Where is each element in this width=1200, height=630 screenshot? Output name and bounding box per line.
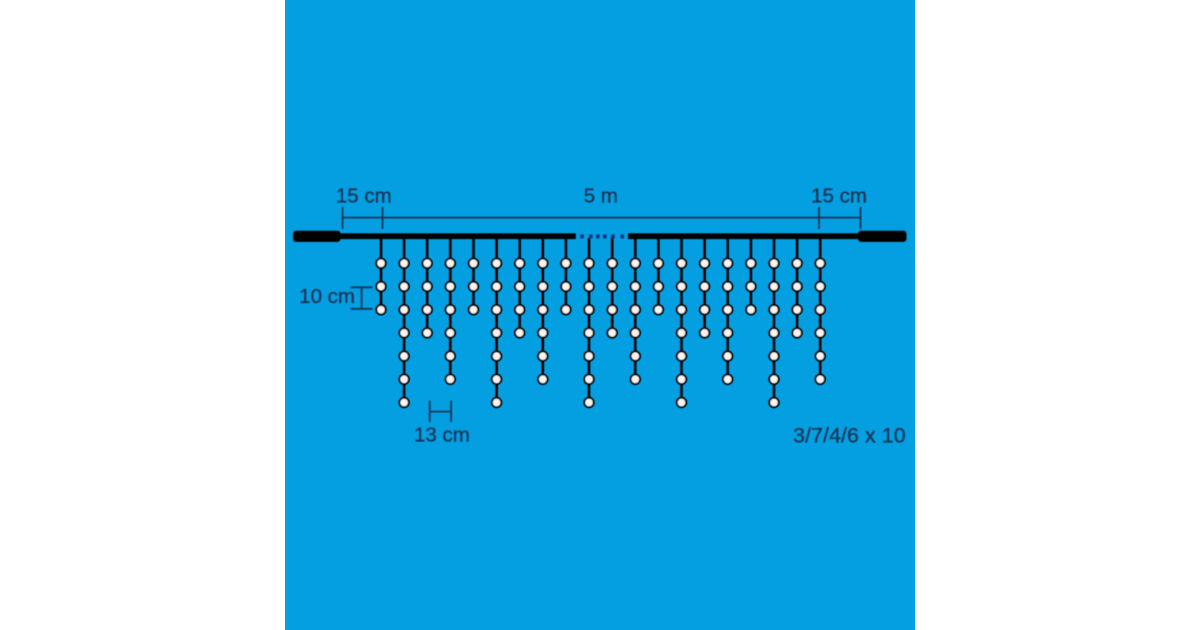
svg-text:3/7/4/6 x 10: 3/7/4/6 x 10 (793, 423, 906, 447)
svg-text:15 cm: 15 cm (336, 185, 392, 208)
svg-text:5 m: 5 m (584, 185, 618, 208)
svg-text:13 cm: 13 cm (414, 424, 470, 447)
svg-text:10 cm: 10 cm (299, 285, 355, 308)
svg-text:15 cm: 15 cm (811, 185, 867, 208)
